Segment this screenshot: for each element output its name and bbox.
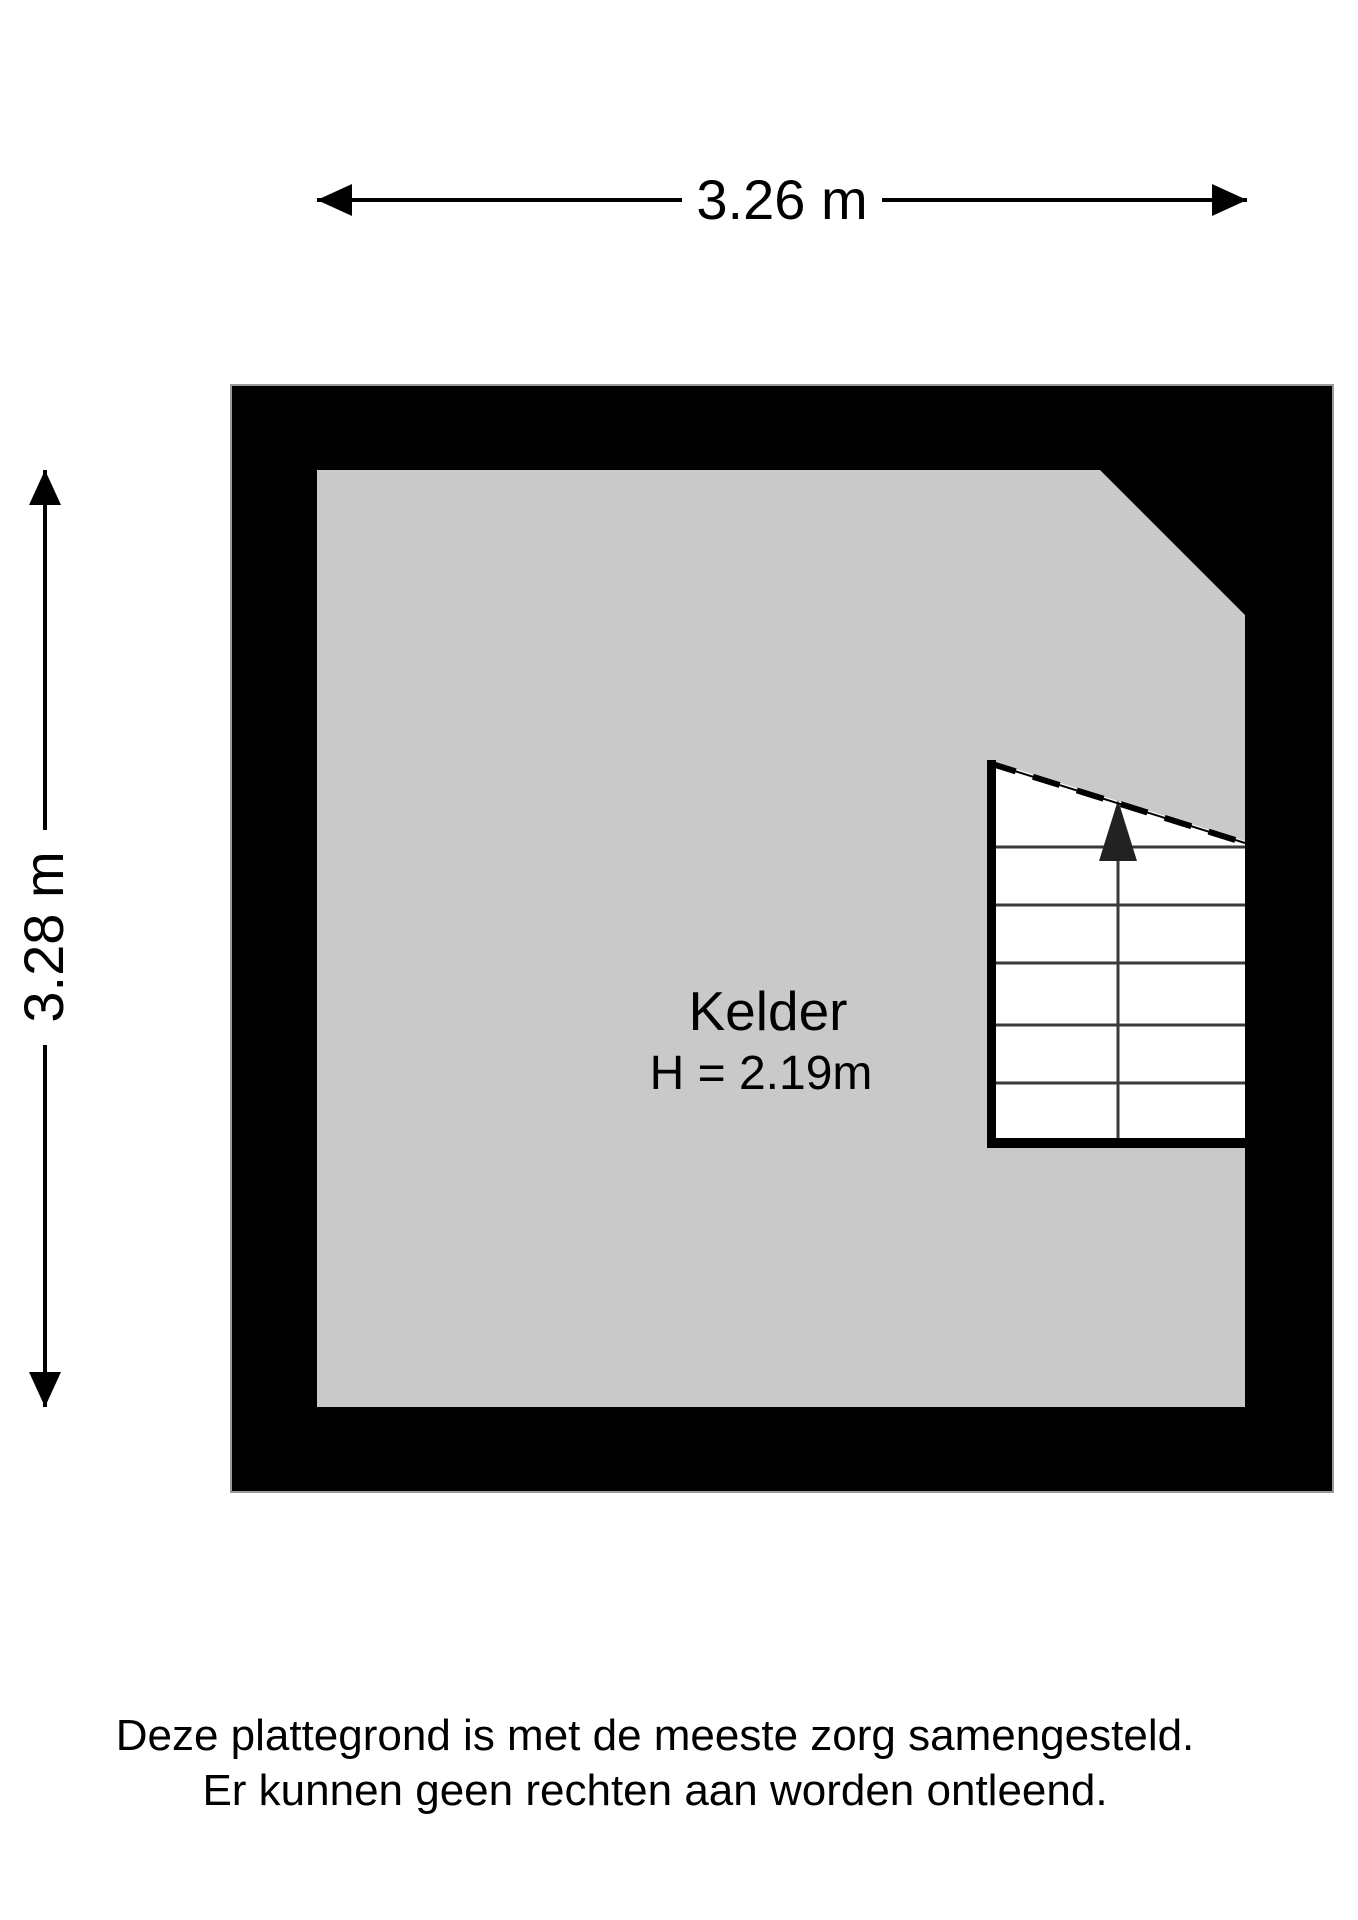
arrowhead-up-icon xyxy=(29,470,61,505)
room-name-label: Kelder xyxy=(689,980,848,1042)
arrowhead-left-icon xyxy=(317,184,352,216)
stair-bottom-edge xyxy=(987,1138,1245,1148)
arrowhead-right-icon xyxy=(1212,184,1247,216)
top-dimension: 3.26 m xyxy=(317,168,1247,231)
stair-left-edge xyxy=(987,760,996,1148)
room-height-label: H = 2.19m xyxy=(650,1047,873,1100)
disclaimer-text: Deze plattegrond is met de meeste zorg s… xyxy=(116,1711,1195,1815)
top-dimension-label: 3.26 m xyxy=(696,168,867,231)
arrowhead-down-icon xyxy=(29,1372,61,1407)
left-dimension-label: 3.28 m xyxy=(12,851,75,1022)
left-dimension: 3.28 m xyxy=(12,470,75,1407)
disclaimer-line-2: Er kunnen geen rechten aan worden ontlee… xyxy=(202,1766,1107,1815)
floorplan-drawing: 3.26 m 3.28 m xyxy=(0,0,1358,1920)
disclaimer-line-1: Deze plattegrond is met de meeste zorg s… xyxy=(116,1711,1195,1760)
floorplan-page: 3.26 m 3.28 m xyxy=(0,0,1358,1920)
